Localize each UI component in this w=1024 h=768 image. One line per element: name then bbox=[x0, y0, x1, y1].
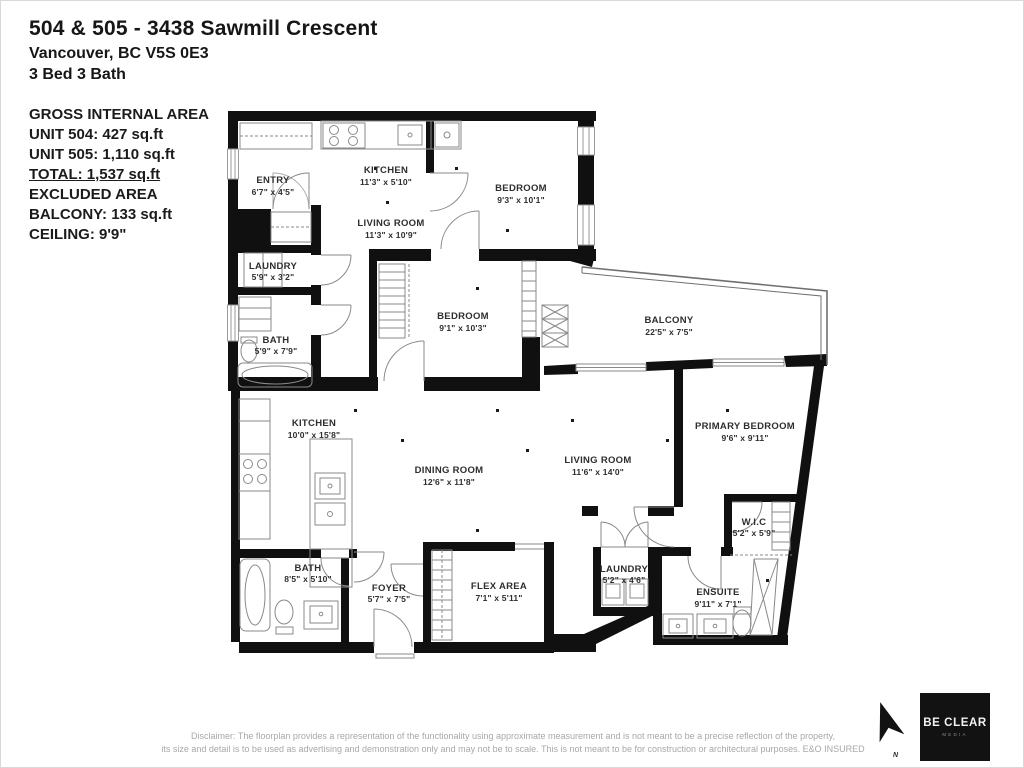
svg-text:22'5" x 7'5": 22'5" x 7'5" bbox=[645, 327, 693, 337]
svg-text:12'6" x 11'8": 12'6" x 11'8" bbox=[423, 477, 475, 487]
header: 504 & 505 - 3438 Sawmill Crescent Vancou… bbox=[29, 17, 378, 84]
room-label-bedroom-middle: BEDROOM 9'1" x 10'3" bbox=[437, 311, 489, 333]
svg-text:LIVING ROOM: LIVING ROOM bbox=[357, 218, 424, 229]
north-arrow-icon: N bbox=[867, 699, 911, 761]
svg-text:ENSUITE: ENSUITE bbox=[696, 587, 739, 598]
svg-text:LAUNDRY: LAUNDRY bbox=[600, 564, 649, 575]
room-label-kitchen-505: KITCHEN 10'0" x 15'8" bbox=[288, 418, 341, 440]
svg-text:9'3" x 10'1": 9'3" x 10'1" bbox=[497, 195, 545, 205]
balcony-outline bbox=[582, 267, 827, 365]
balcony-area: BALCONY: 133 sq.ft bbox=[29, 205, 209, 225]
north-arrow: N bbox=[867, 699, 911, 761]
svg-text:9'6" x 9'11": 9'6" x 9'11" bbox=[721, 433, 768, 443]
svg-text:11'3" x 10'9": 11'3" x 10'9" bbox=[365, 230, 417, 240]
floorplan-page: 504 & 505 - 3438 Sawmill Crescent Vancou… bbox=[0, 0, 1024, 768]
svg-text:5'2" x 5'9": 5'2" x 5'9" bbox=[733, 528, 776, 538]
total-area: TOTAL: 1,537 sq.ft bbox=[29, 165, 209, 185]
svg-text:KITCHEN: KITCHEN bbox=[292, 418, 336, 429]
room-label-laundry-505: LAUNDRY 5'2" x 4'6" bbox=[600, 564, 649, 585]
beds-baths-line: 3 Bed 3 Bath bbox=[29, 66, 378, 84]
svg-text:ENTRY: ENTRY bbox=[256, 175, 290, 186]
svg-text:10'0" x 15'8": 10'0" x 15'8" bbox=[288, 430, 341, 440]
room-label-bath-505: BATH 8'5" x 5'10" bbox=[284, 563, 332, 584]
gross-area-heading: GROSS INTERNAL AREA bbox=[29, 105, 209, 125]
room-label-bath-504: BATH 5'9" x 7'9" bbox=[255, 335, 298, 356]
unit-504-area: UNIT 504: 427 sq.ft bbox=[29, 125, 209, 145]
svg-text:9'11" x 7'1": 9'11" x 7'1" bbox=[694, 599, 741, 609]
svg-text:LIVING ROOM: LIVING ROOM bbox=[564, 455, 631, 466]
disclaimer-line1: Disclaimer: The floorplan provides a rep… bbox=[63, 730, 963, 743]
room-label-living-room-504: LIVING ROOM 11'3" x 10'9" bbox=[357, 218, 424, 240]
svg-text:11'3" x 5'10": 11'3" x 5'10" bbox=[360, 177, 412, 187]
svg-text:PRIMARY BEDROOM: PRIMARY BEDROOM bbox=[695, 421, 795, 432]
svg-text:W.I.C: W.I.C bbox=[742, 517, 767, 528]
room-label-balcony: BALCONY 22'5" x 7'5" bbox=[644, 315, 693, 337]
svg-text:5'2" x 4'6": 5'2" x 4'6" bbox=[603, 575, 646, 585]
room-label-foyer: FOYER 5'7" x 7'5" bbox=[368, 583, 411, 604]
svg-text:9'1" x 10'3": 9'1" x 10'3" bbox=[439, 323, 487, 333]
svg-text:11'6" x 14'0": 11'6" x 14'0" bbox=[572, 467, 624, 477]
svg-text:LAUNDRY: LAUNDRY bbox=[249, 261, 298, 272]
svg-text:FOYER: FOYER bbox=[372, 583, 406, 594]
svg-text:KITCHEN: KITCHEN bbox=[364, 165, 408, 176]
logo-be-clear: BE CLEAR MEDIA bbox=[920, 693, 990, 761]
logo-text: BE CLEAR bbox=[923, 717, 987, 729]
svg-text:N: N bbox=[893, 752, 899, 759]
svg-text:BATH: BATH bbox=[295, 563, 322, 574]
svg-text:BATH: BATH bbox=[263, 335, 290, 346]
area-summary: GROSS INTERNAL AREA UNIT 504: 427 sq.ft … bbox=[29, 105, 209, 245]
address-line: Vancouver, BC V5S 0E3 bbox=[29, 45, 378, 63]
svg-text:7'1" x 5'11": 7'1" x 5'11" bbox=[475, 593, 522, 603]
svg-text:BEDROOM: BEDROOM bbox=[495, 183, 547, 194]
room-label-wic: W.I.C 5'2" x 5'9" bbox=[733, 517, 776, 538]
svg-text:FLEX AREA: FLEX AREA bbox=[471, 581, 527, 592]
room-label-ensuite: ENSUITE 9'11" x 7'1" bbox=[694, 587, 741, 609]
room-label-living-room-505: LIVING ROOM 11'6" x 14'0" bbox=[564, 455, 631, 477]
logo-subtext: MEDIA bbox=[942, 732, 967, 737]
floorplan-drawing: ENTRY 6'7" x 4'5" KITCHEN 11'3" x 5'10" … bbox=[226, 109, 836, 661]
svg-text:6'7" x 4'5": 6'7" x 4'5" bbox=[252, 187, 295, 197]
room-label-bedroom-top: BEDROOM 9'3" x 10'1" bbox=[495, 183, 547, 205]
room-label-primary-bedroom: PRIMARY BEDROOM 9'6" x 9'11" bbox=[695, 421, 795, 443]
room-label-flex-area: FLEX AREA 7'1" x 5'11" bbox=[471, 581, 527, 603]
svg-text:8'5" x 5'10": 8'5" x 5'10" bbox=[284, 574, 332, 584]
unit-505-area: UNIT 505: 1,110 sq.ft bbox=[29, 145, 209, 165]
svg-text:5'9" x 3'2": 5'9" x 3'2" bbox=[252, 272, 295, 282]
page-title: 504 & 505 - 3438 Sawmill Crescent bbox=[29, 17, 378, 41]
disclaimer-line2: its size and detail is to be used as adv… bbox=[63, 743, 963, 756]
disclaimer: Disclaimer: The floorplan provides a rep… bbox=[63, 730, 963, 755]
excluded-area-heading: EXCLUDED AREA bbox=[29, 185, 209, 205]
svg-text:BALCONY: BALCONY bbox=[644, 315, 693, 326]
svg-text:DINING ROOM: DINING ROOM bbox=[415, 465, 484, 476]
floorplan-svg: ENTRY 6'7" x 4'5" KITCHEN 11'3" x 5'10" … bbox=[226, 109, 836, 661]
room-label-laundry-504: LAUNDRY 5'9" x 3'2" bbox=[249, 261, 298, 282]
svg-text:5'9" x 7'9": 5'9" x 7'9" bbox=[255, 346, 298, 356]
room-label-kitchen-504: KITCHEN 11'3" x 5'10" bbox=[360, 165, 412, 187]
svg-text:5'7" x 7'5": 5'7" x 7'5" bbox=[368, 594, 411, 604]
svg-text:BEDROOM: BEDROOM bbox=[437, 311, 489, 322]
ceiling-height: CEILING: 9'9" bbox=[29, 225, 209, 245]
room-label-dining-room: DINING ROOM 12'6" x 11'8" bbox=[415, 465, 484, 487]
